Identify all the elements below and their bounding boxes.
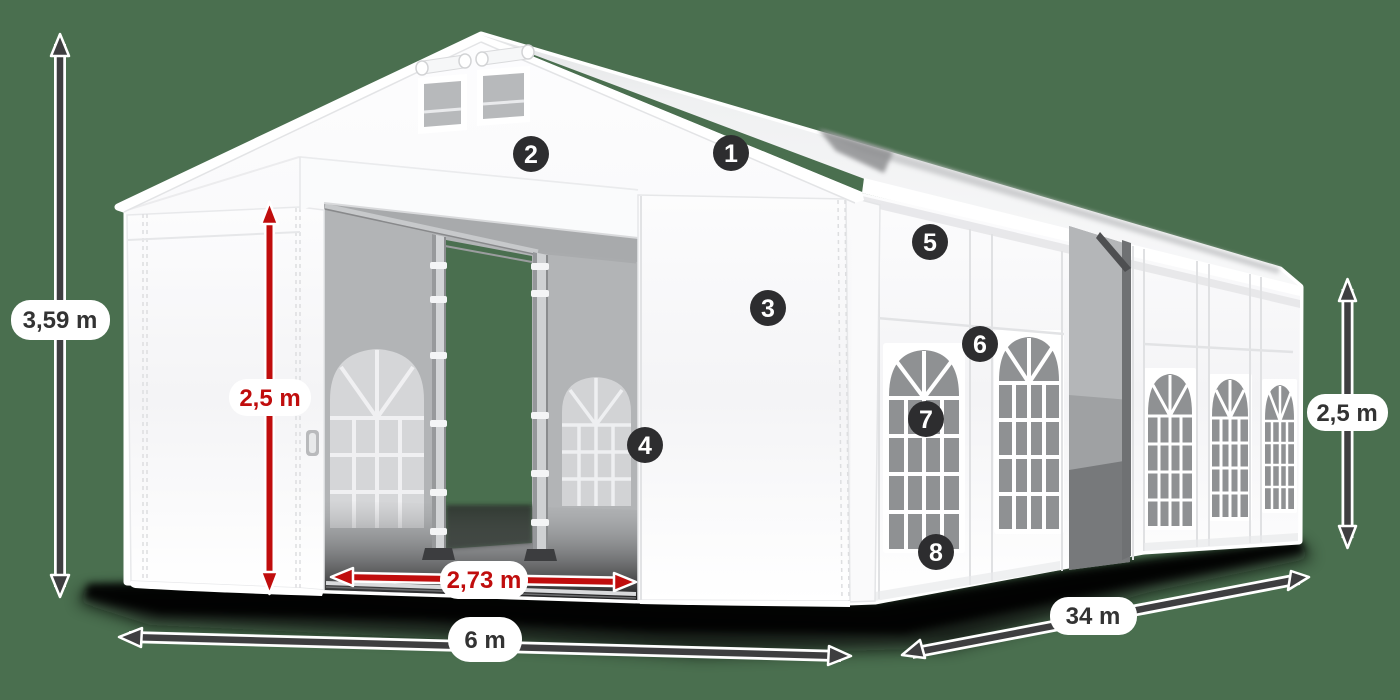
svg-text:2,73 m: 2,73 m — [447, 567, 522, 594]
svg-text:1: 1 — [724, 140, 738, 168]
svg-text:6 m: 6 m — [464, 627, 505, 654]
svg-text:2: 2 — [524, 141, 538, 169]
svg-text:6: 6 — [973, 331, 987, 359]
svg-text:8: 8 — [929, 539, 943, 567]
svg-text:2,5 m: 2,5 m — [239, 385, 300, 412]
svg-text:34 m: 34 m — [1066, 603, 1121, 630]
svg-text:5: 5 — [923, 229, 937, 257]
svg-text:7: 7 — [919, 406, 933, 434]
svg-text:3,59 m: 3,59 m — [23, 307, 98, 334]
svg-text:2,5 m: 2,5 m — [1316, 400, 1377, 427]
svg-text:3: 3 — [761, 295, 775, 323]
svg-text:4: 4 — [638, 432, 652, 460]
